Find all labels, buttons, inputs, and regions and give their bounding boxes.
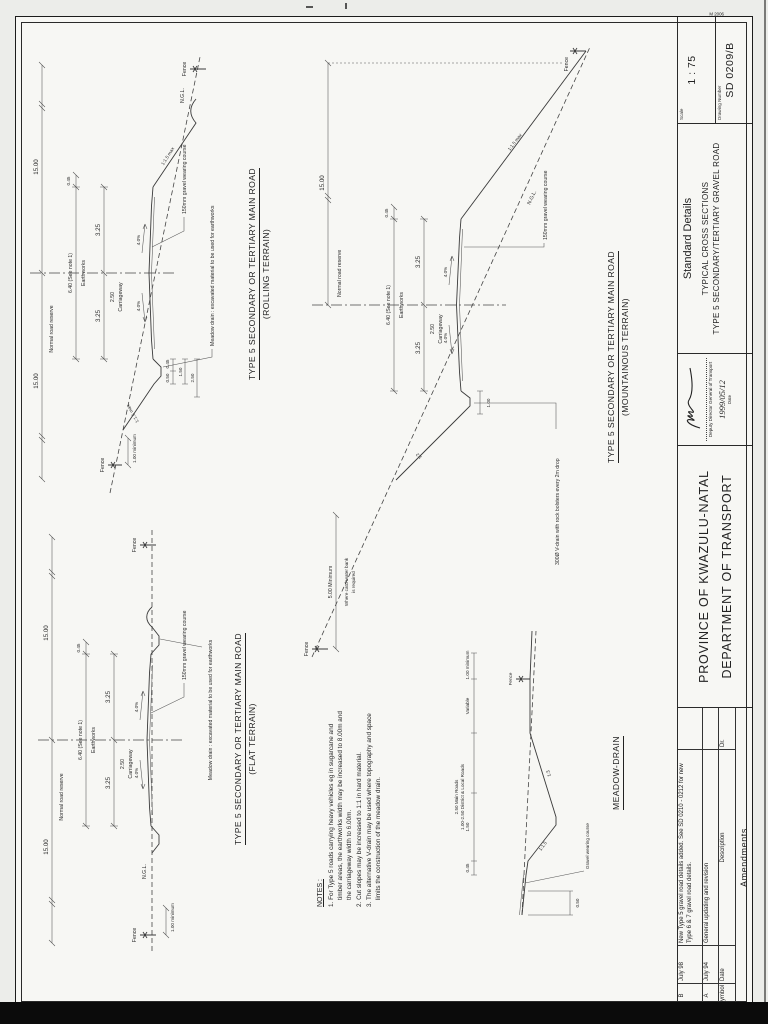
dim-label: Carriageway	[118, 282, 124, 312]
dim-label: 6.40 (See note 1)	[68, 253, 74, 293]
note-item: 3. The alternative V-drain may be used w…	[366, 711, 384, 907]
dim-label: Earthworks	[399, 292, 405, 318]
dim-label: 0.50	[575, 898, 580, 907]
reserve-name-label: Normal road reserve	[59, 773, 65, 820]
gravel-course-note: Gravel wearing course	[585, 823, 590, 869]
drawing-sheet: 15.00 15.00 Normal road reserve 6.40 (Se…	[15, 16, 753, 1008]
dim-label: Earthworks	[81, 260, 87, 286]
fence-label: Fence	[182, 62, 188, 77]
dim-label: 0.45	[76, 643, 81, 652]
scale-value: 1 : 75	[686, 20, 698, 120]
flat-terrain-title: TYPE 5 SECONDARY OR TERTIARY MAIN ROAD (…	[232, 513, 259, 965]
dim-label: 3.25	[95, 223, 102, 236]
revision-header-row: Symbol Date Description Dr.	[719, 708, 736, 1007]
dim-label: 1.50	[178, 367, 183, 376]
meadow-drain-right	[147, 607, 159, 654]
revision-header-dr: Dr.	[719, 715, 735, 749]
slope-label: 1:1.5 max	[125, 403, 140, 424]
meadow-drain-title: MEADOW-DRAIN	[610, 623, 624, 923]
catchwater-note: is required	[351, 571, 356, 593]
crossfall-label: 4.0%	[443, 267, 448, 277]
dim-label: 2.50	[120, 759, 126, 769]
dim-label: 0.50	[165, 373, 170, 382]
signature-icon	[680, 365, 706, 435]
revision-row: A July 94 General updating and revision	[703, 708, 720, 1007]
dim-label: 3.25	[415, 255, 422, 268]
dim-label: 3.25	[415, 341, 422, 354]
dim-label: 1.50	[465, 822, 470, 831]
dim-label: Variable	[465, 697, 470, 714]
fence-label: Fence	[132, 538, 138, 553]
slope-label: 1:1.5	[538, 840, 548, 852]
fence-label: Fence	[304, 642, 310, 657]
cut-slope-and-vdrain	[396, 391, 470, 480]
signature-date: 1999/05/12	[717, 354, 727, 445]
scale-number-block: Scale 1 : 75 Drawing Number SD 0209/B M …	[678, 17, 752, 123]
note-item: 1. For Type 5 roads carrying heavy vehic…	[328, 711, 355, 907]
dim-label: Earthworks	[91, 727, 97, 753]
title-strip: B July 98 New Type 5 gravel road details…	[677, 17, 752, 1007]
fence-symbol	[570, 48, 586, 54]
dim-label: 6.40 (See note 1)	[386, 285, 392, 325]
cut-slope-and-drain	[123, 359, 161, 430]
wearing-note: 150mm gravel wearing course	[543, 170, 549, 240]
drawing-number-label: Drawing Number	[717, 20, 722, 120]
dim-label: 15.00	[33, 159, 40, 175]
ngl-label: N.G.L.	[180, 88, 186, 103]
dim-label: 3.25	[105, 776, 112, 789]
dim-label: 2.50	[430, 324, 436, 334]
meadow-drain-note: Meadow drain : excavated material to be …	[210, 205, 216, 346]
meadow-drain-note: Meadow drain : excavated material to be …	[208, 639, 214, 780]
fence-label: Fence	[100, 458, 106, 473]
sheet-title-block: Standard Details TYPICAL CROSS SECTIONS …	[678, 123, 752, 353]
notes-block: NOTES : 1. For Type 5 roads carrying hea…	[316, 711, 385, 907]
dim-label: 3.25	[105, 690, 112, 703]
registration-mark	[306, 6, 313, 8]
revision-header-description: Description	[719, 749, 735, 945]
slope-label: 1:1.5 max	[507, 132, 524, 152]
vdrain-note: 300Ø V-drain with rock bolsters every 2m…	[555, 458, 561, 565]
revision-row: B July 98 New Type 5 gravel road details…	[678, 708, 703, 1007]
dim-label: 0.45	[66, 176, 71, 185]
notes-title: NOTES :	[316, 711, 326, 907]
revision-table: B July 98 New Type 5 gravel road details…	[678, 707, 752, 1007]
natural-ground-line	[110, 57, 200, 493]
revision-dr	[703, 715, 719, 749]
ngl-label: N.G.L.	[526, 190, 538, 206]
dim-label: 15.00	[43, 625, 50, 641]
rolling-terrain-cross-section: 15.00 15.00 Normal road reserve 6.40 (Se…	[26, 45, 238, 505]
scale-cell: Scale 1 : 75	[678, 17, 715, 123]
amendments-label: Amendments	[736, 708, 752, 1007]
crossfall-label: 4.0%	[136, 301, 141, 311]
mountainous-terrain-title: TYPE 5 SECONDARY OR TERTIARY MAIN ROAD (…	[605, 207, 632, 507]
scale-label: Scale	[679, 20, 684, 120]
dim-label: 15.00	[319, 175, 326, 191]
fence-label: Fence	[564, 57, 570, 72]
section-rolling-terrain: 15.00 15.00 Normal road reserve 6.40 (Se…	[26, 43, 273, 505]
dim-label: 15.00	[43, 839, 50, 855]
slope-label: 1:1.5 max	[160, 146, 175, 166]
reserve-name-label: Normal road reserve	[337, 250, 343, 297]
slope-label: 1:2	[415, 452, 423, 460]
mountainous-terrain-cross-section: 15.00 Normal road reserve 6.40 (See note…	[268, 30, 598, 675]
crossfall-label: 4.0%	[134, 702, 139, 712]
crossfall-label: 4.0%	[134, 768, 139, 778]
department-name: DEPARTMENT OF TRANSPORT	[720, 474, 734, 678]
registration-mark	[345, 3, 347, 9]
standard-details-label: Standard Details	[682, 124, 694, 353]
sheet-title-line2: TYPE 5 SECONDARY/TERTIARY GRAVEL ROAD	[712, 124, 721, 353]
section-flat-terrain: 15.00 15.00 Normal road reserve 6.40 (Se…	[32, 513, 259, 965]
authority-block: PROVINCE OF KWAZULU-NATAL DEPARTMENT OF …	[678, 445, 752, 707]
revision-dr	[678, 715, 702, 749]
revision-description: General updating and revision	[703, 749, 719, 945]
dim-label: 2.50 Main Roads	[454, 779, 459, 814]
dim-label: 1.00 minimum	[132, 434, 137, 463]
crossfall-label: 4.0%	[443, 333, 448, 343]
revision-description: New Type 5 gravel road details added. Se…	[678, 749, 702, 945]
province-name: PROVINCE OF KWAZULU-NATAL	[697, 470, 711, 683]
scan-edge-line	[764, 0, 766, 1002]
dim-label: 5.00 Minimum	[328, 566, 334, 599]
dim-label: 2.50	[110, 292, 116, 302]
catchwater-note: Where catchwater bank	[344, 557, 349, 606]
drawing-number-cell: Drawing Number SD 0209/B M 2006	[715, 17, 753, 123]
revision-date: July 98	[678, 945, 702, 983]
dim-label: 3.25	[95, 309, 102, 322]
sheet-title-line1: TYPICAL CROSS SECTIONS	[701, 124, 710, 353]
section-mountainous-terrain: 15.00 Normal road reserve 6.40 (See note…	[268, 27, 603, 675]
dim-label: 2.50	[190, 373, 195, 382]
dim-label: 0.45	[165, 359, 170, 368]
revision-header-date: Date	[719, 945, 735, 983]
note-item: 2. Cut slopes may be increased to 1:1 in…	[356, 711, 365, 907]
revision-date: July 94	[703, 945, 719, 983]
signature-role: Deputy Director General of Transport	[706, 358, 714, 441]
form-number: M 2006	[709, 11, 724, 16]
wearing-note: 150mm gravel wearing course	[182, 610, 188, 680]
dim-label: 1.00 minimum	[170, 903, 175, 932]
slope-label: 1:3	[545, 769, 552, 777]
fence-symbol	[140, 932, 156, 938]
reserve-name-label: Normal road reserve	[49, 305, 55, 352]
drawing-number-value: SD 0209/B	[724, 20, 736, 120]
dim-label: 1.00-2.50 District & Local Roads	[460, 763, 465, 830]
dim-label: 0.45	[465, 863, 470, 872]
fence-label: Fence	[132, 928, 138, 943]
signature-block: Deputy Director General of Transport 199…	[678, 353, 752, 445]
fill-slope	[461, 51, 586, 219]
crossfall-label: 4.0%	[136, 235, 141, 245]
fill-slope	[153, 99, 196, 187]
dim-label: 0.45	[384, 208, 389, 217]
wearing-note: 150mm gravel wearing course	[182, 144, 188, 214]
dim-label: 6.40 (See note 1)	[78, 720, 84, 760]
scan-black-band	[0, 1002, 768, 1024]
flat-terrain-cross-section: 15.00 15.00 Normal road reserve 6.40 (Se…	[32, 515, 224, 965]
scanned-drawing-page: 15.00 15.00 Normal road reserve 6.40 (Se…	[0, 0, 768, 1024]
fence-symbol	[312, 646, 328, 652]
fence-symbol	[516, 676, 530, 682]
ngl-label: N.G.L.	[142, 864, 148, 879]
dim-label: 15.00	[33, 373, 40, 389]
fence-symbol	[140, 542, 156, 548]
signature-date-label: Date	[727, 354, 732, 445]
